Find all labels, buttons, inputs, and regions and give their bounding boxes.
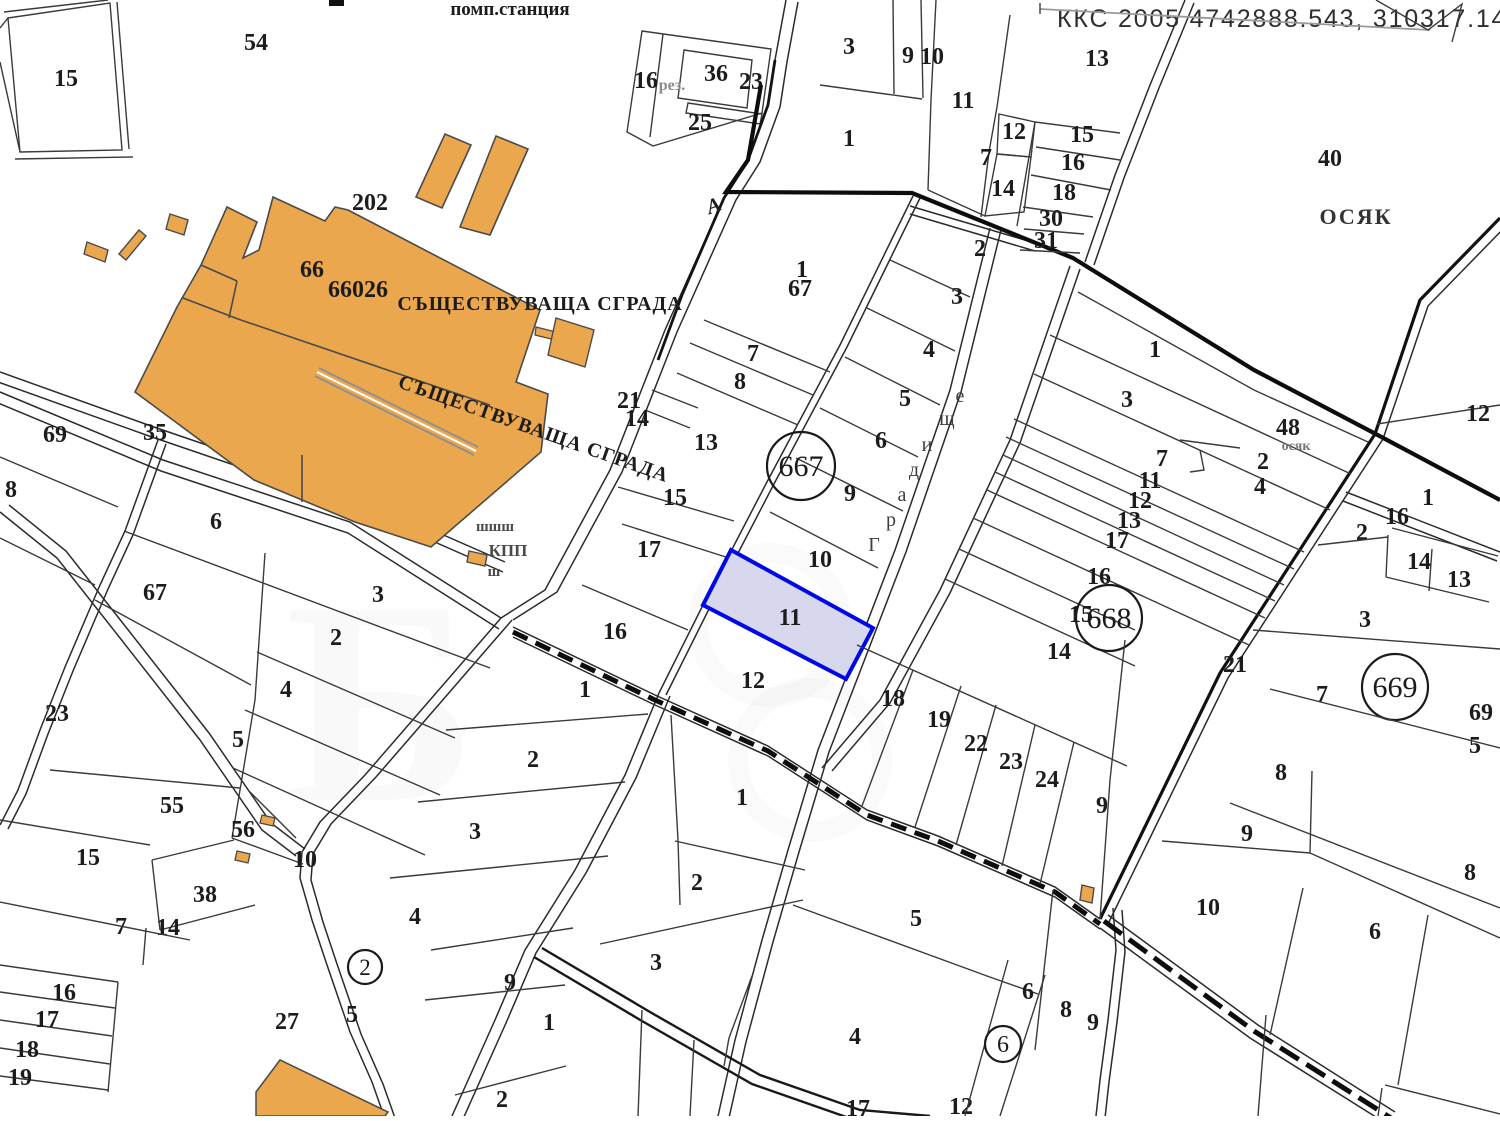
svg-text:17: 17 [637, 537, 661, 563]
svg-text:7: 7 [980, 145, 992, 171]
svg-text:9: 9 [902, 43, 914, 69]
svg-text:9: 9 [1096, 793, 1108, 819]
svg-text:8: 8 [1464, 860, 1476, 886]
svg-text:9: 9 [844, 481, 856, 507]
svg-text:16: 16 [1061, 150, 1085, 176]
svg-text:19: 19 [8, 1065, 32, 1091]
svg-text:17: 17 [35, 1007, 59, 1033]
svg-text:7: 7 [747, 341, 759, 367]
svg-text:1: 1 [543, 1010, 555, 1036]
svg-text:помп.станция: помп.станция [450, 0, 569, 20]
svg-text:69: 69 [43, 422, 67, 448]
svg-text:3: 3 [650, 950, 662, 976]
svg-text:6: 6 [210, 509, 222, 535]
svg-text:15: 15 [54, 66, 78, 92]
svg-text:ш: ш [488, 564, 501, 580]
svg-text:2: 2 [691, 870, 703, 896]
svg-text:22: 22 [964, 731, 988, 757]
svg-text:е: е [956, 385, 965, 407]
svg-text:ККС 2005 4742888.543, 310317.1: ККС 2005 4742888.543, 310317.14 [1057, 5, 1500, 33]
svg-text:2: 2 [496, 1087, 508, 1113]
svg-text:31: 31 [1034, 228, 1058, 254]
svg-text:17: 17 [846, 1096, 870, 1116]
svg-text:14: 14 [1047, 639, 1071, 665]
svg-text:10: 10 [920, 44, 944, 70]
svg-text:40: 40 [1318, 146, 1342, 172]
svg-text:17: 17 [1105, 528, 1129, 554]
svg-text:1: 1 [579, 677, 591, 703]
svg-text:9: 9 [1241, 821, 1253, 847]
svg-text:4: 4 [409, 904, 421, 930]
svg-text:6: 6 [1369, 919, 1381, 945]
svg-text:669: 669 [1373, 671, 1418, 704]
svg-text:9: 9 [504, 970, 516, 996]
svg-text:15: 15 [76, 845, 100, 871]
svg-text:д: д [909, 459, 919, 481]
svg-text:14: 14 [625, 406, 649, 432]
svg-text:16: 16 [603, 619, 627, 645]
svg-text:23: 23 [999, 749, 1023, 775]
svg-text:2: 2 [1356, 520, 1368, 546]
svg-text:18: 18 [881, 686, 905, 712]
svg-text:и: и [922, 434, 933, 456]
svg-text:55: 55 [160, 793, 184, 819]
svg-text:13: 13 [694, 430, 718, 456]
svg-text:8: 8 [734, 369, 746, 395]
svg-text:38: 38 [193, 882, 217, 908]
svg-text:а: а [898, 484, 907, 506]
svg-text:5: 5 [1469, 733, 1481, 759]
svg-text:202: 202 [352, 190, 388, 216]
svg-text:23: 23 [45, 701, 69, 727]
svg-text:10: 10 [1196, 895, 1220, 921]
svg-text:2: 2 [527, 747, 539, 773]
svg-text:СЪЩЕСТВУВАЩА СГРАДА: СЪЩЕСТВУВАЩА СГРАДА [397, 293, 682, 315]
svg-text:1: 1 [1149, 337, 1161, 363]
svg-text:5: 5 [899, 386, 911, 412]
svg-text:35: 35 [143, 420, 167, 446]
svg-text:8: 8 [1060, 997, 1072, 1023]
svg-text:24: 24 [1035, 767, 1059, 793]
svg-text:13: 13 [1085, 46, 1109, 72]
svg-text:6: 6 [1022, 979, 1034, 1005]
svg-text:66026: 66026 [328, 277, 388, 303]
svg-text:67: 67 [143, 580, 167, 606]
svg-text:Г: Г [868, 534, 880, 556]
svg-text:3: 3 [1121, 387, 1133, 413]
svg-text:шшш: шшш [476, 519, 514, 535]
svg-text:КПП: КПП [489, 541, 528, 560]
svg-text:2: 2 [359, 955, 371, 980]
svg-text:667: 667 [779, 450, 824, 483]
svg-text:5: 5 [910, 906, 922, 932]
svg-text:щ: щ [939, 408, 954, 430]
svg-text:4: 4 [849, 1024, 861, 1050]
svg-text:2: 2 [330, 625, 342, 651]
svg-text:12: 12 [949, 1094, 973, 1116]
svg-text:11: 11 [779, 605, 802, 631]
svg-text:36: 36 [704, 61, 728, 87]
svg-text:21: 21 [1223, 652, 1247, 678]
svg-text:27: 27 [275, 1009, 299, 1035]
svg-text:3: 3 [1359, 607, 1371, 633]
svg-text:1: 1 [1422, 485, 1434, 511]
svg-text:8: 8 [5, 477, 17, 503]
svg-text:4: 4 [923, 337, 935, 363]
svg-text:25: 25 [688, 110, 712, 136]
svg-text:15: 15 [1070, 122, 1094, 148]
svg-text:осяк: осяк [1282, 439, 1312, 454]
svg-text:3: 3 [469, 819, 481, 845]
svg-text:12: 12 [1002, 119, 1026, 145]
svg-text:668: 668 [1087, 602, 1132, 635]
svg-text:15: 15 [663, 485, 687, 511]
svg-text:4: 4 [1254, 474, 1266, 500]
svg-text:18: 18 [15, 1037, 39, 1063]
svg-text:6: 6 [875, 428, 887, 454]
svg-text:69: 69 [1469, 700, 1493, 726]
svg-text:6: 6 [997, 1032, 1009, 1058]
svg-text:рез.: рез. [659, 77, 685, 94]
svg-text:19: 19 [927, 707, 951, 733]
svg-text:66: 66 [300, 257, 324, 283]
svg-text:р: р [886, 509, 896, 531]
svg-text:3: 3 [372, 582, 384, 608]
svg-text:2: 2 [1257, 449, 1269, 475]
svg-text:12: 12 [741, 668, 765, 694]
svg-text:14: 14 [1407, 549, 1431, 575]
svg-text:13: 13 [1447, 567, 1471, 593]
svg-text:16: 16 [634, 68, 658, 94]
svg-text:3: 3 [843, 34, 855, 60]
svg-text:56: 56 [231, 817, 255, 843]
svg-text:11: 11 [952, 88, 975, 114]
svg-text:67: 67 [788, 276, 812, 302]
svg-text:12: 12 [1466, 401, 1490, 427]
svg-text:16: 16 [52, 980, 76, 1006]
svg-text:3: 3 [951, 284, 963, 310]
svg-text:48: 48 [1276, 415, 1300, 441]
svg-text:14: 14 [991, 176, 1015, 202]
svg-text:18: 18 [1052, 180, 1076, 206]
svg-text:54: 54 [244, 30, 268, 56]
svg-text:1: 1 [843, 126, 855, 152]
svg-text:1: 1 [736, 785, 748, 811]
svg-text:9: 9 [1087, 1010, 1099, 1036]
svg-text:2: 2 [974, 236, 986, 262]
svg-text:5: 5 [346, 1002, 358, 1028]
svg-text:16: 16 [1385, 504, 1409, 530]
svg-text:4: 4 [280, 677, 292, 703]
svg-text:5: 5 [232, 727, 244, 753]
svg-text:10: 10 [808, 547, 832, 573]
svg-text:10: 10 [293, 847, 317, 873]
svg-text:ОСЯК: ОСЯК [1319, 204, 1392, 229]
svg-text:8: 8 [1275, 760, 1287, 786]
